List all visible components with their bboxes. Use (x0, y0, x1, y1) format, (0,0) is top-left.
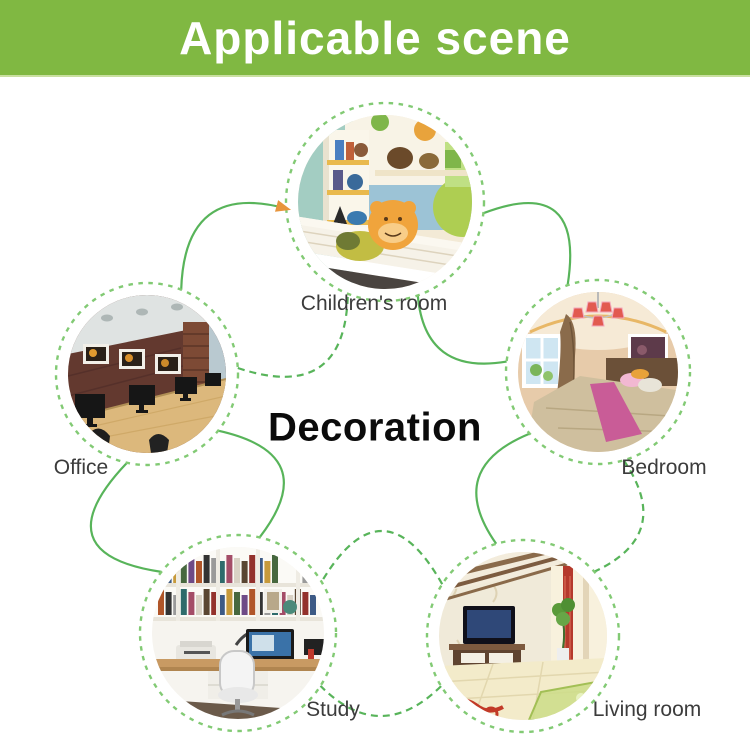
office-image (68, 295, 226, 453)
living-room-image (439, 552, 607, 720)
label-children-room: Children's room (301, 292, 447, 316)
connector-arc (483, 203, 570, 285)
label-living-room: Living room (593, 698, 702, 722)
label-office: Office (54, 456, 108, 480)
connector-arc (181, 203, 286, 290)
children-room-image (277, 111, 493, 306)
connector-arc (322, 531, 443, 584)
study-image (152, 547, 324, 719)
page: Applicable scene (0, 0, 750, 750)
connector-arc (476, 434, 529, 544)
label-study: Study (306, 698, 360, 722)
bedroom-image (518, 282, 678, 452)
label-bedroom: Bedroom (621, 456, 706, 480)
direction-arrow-icon (275, 200, 291, 212)
scene-diagram (0, 0, 750, 750)
center-label: Decoration (268, 406, 482, 451)
